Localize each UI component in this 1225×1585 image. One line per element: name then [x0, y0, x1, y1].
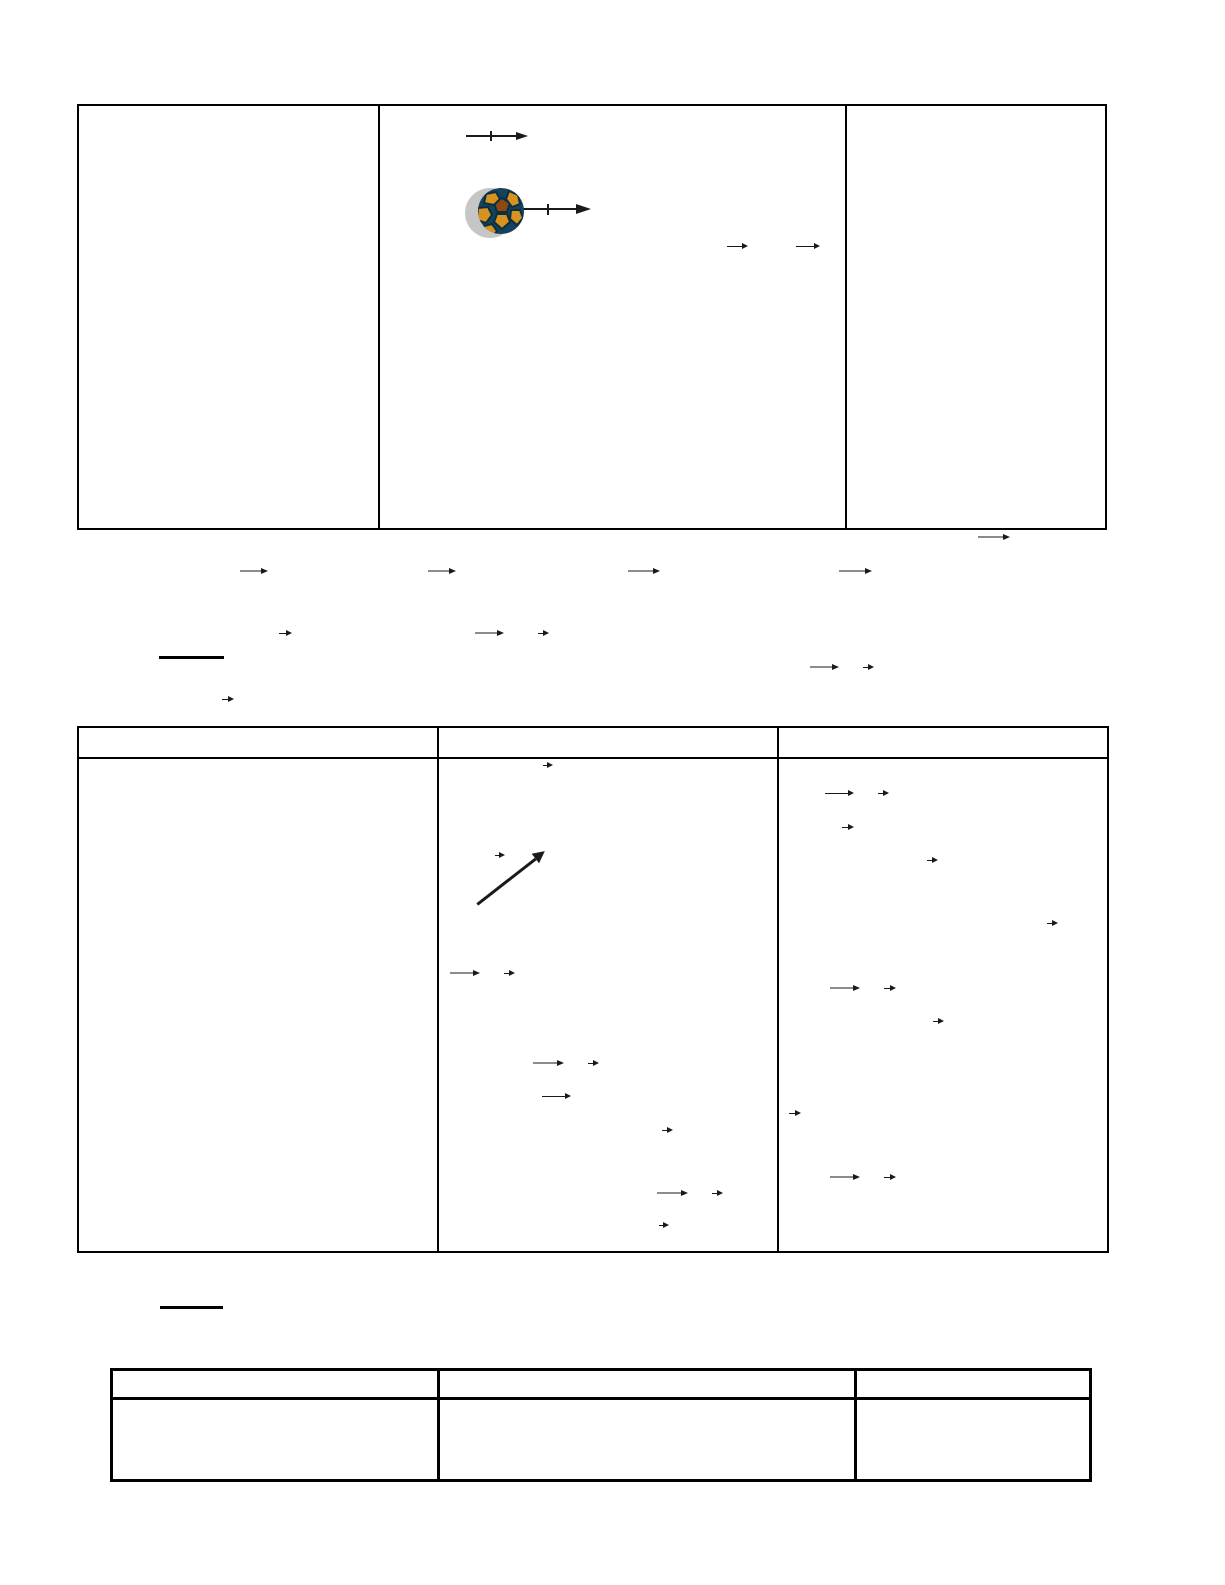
vector-arrow-shaft [863, 667, 869, 668]
vector-arrow-head [497, 630, 504, 636]
answer-blank-underline [159, 656, 224, 659]
vector-arrow-head [865, 568, 872, 574]
graphics-layer [0, 0, 1225, 1585]
vector-arrow-shaft [543, 765, 548, 766]
vector-arrow [842, 823, 854, 831]
vector-arrow [495, 851, 505, 859]
vector-arrow-head [938, 1018, 944, 1024]
vector-arrow-head [883, 790, 889, 796]
vector-arrow-head [681, 1190, 688, 1196]
vector-arrow [727, 242, 748, 250]
vector-arrow-shaft [279, 633, 287, 634]
vector-arrow-shaft [789, 1113, 796, 1114]
vector-arrow [657, 1189, 688, 1197]
middle-table-column-divider [437, 728, 439, 1251]
motion-arrow-tick [547, 204, 549, 215]
soccer-ball-svg [464, 186, 526, 238]
vector-arrow [796, 242, 820, 250]
middle-table [77, 726, 1109, 1253]
vector-arrow-head [557, 1060, 564, 1066]
vector-arrow-head [565, 1093, 571, 1099]
vector-arrow-shaft [933, 1021, 939, 1022]
bottom-table [110, 1368, 1092, 1482]
vector-arrow-head [795, 1110, 801, 1116]
vector-arrow-head [890, 985, 896, 991]
vector-arrow-head [449, 568, 456, 574]
vector-arrow [712, 1189, 723, 1197]
vector-arrow-head [814, 243, 820, 249]
vector-arrow-shaft [450, 972, 474, 974]
vector-arrow-head [1003, 534, 1010, 540]
vector-arrow-shaft [222, 699, 229, 700]
vector-arrow-head [499, 852, 505, 858]
bottom-table-header-divider [113, 1397, 1089, 1400]
vector-arrow-head [1052, 920, 1058, 926]
vector-arrow-head [473, 970, 480, 976]
vector-arrow-head [667, 1127, 673, 1133]
vector-arrow-head [547, 762, 553, 768]
vector-arrow-shaft [796, 246, 815, 247]
vector-arrow-head [932, 857, 938, 863]
vector-arrow [863, 663, 874, 671]
vector-arrow [475, 629, 504, 637]
vector-arrow [628, 567, 660, 575]
vector-arrow [659, 1221, 669, 1229]
vector-arrow-head [848, 824, 854, 830]
vector-arrow [789, 1109, 801, 1117]
vector-arrow-shaft [1047, 923, 1053, 924]
vector-arrow-shaft [504, 973, 510, 974]
vector-arrow [884, 1173, 896, 1181]
vector-arrow [662, 1126, 673, 1134]
vector-arrow [279, 629, 292, 637]
middle-table-column-divider [777, 728, 779, 1251]
vector-arrow-shaft [588, 1063, 594, 1064]
vector-arrow [933, 1017, 944, 1025]
vector-arrow-shaft [657, 1192, 682, 1194]
vector-arrow-shaft [842, 827, 849, 828]
vector-arrow-shaft [428, 570, 450, 572]
vector-arrow-shaft [830, 987, 854, 989]
vector-arrow-shaft [662, 1130, 668, 1131]
vector-arrow-head [832, 664, 839, 670]
vector-arrow-head [593, 1060, 599, 1066]
bottom-table-column-divider [437, 1371, 440, 1479]
vector-arrow-head [653, 568, 660, 574]
vector-arrow-shaft [712, 1193, 718, 1194]
vector-arrow-head [890, 1174, 896, 1180]
vector-arrow-head [742, 243, 748, 249]
vector-arrow-shaft [927, 860, 933, 861]
diagonal-arrow-head [532, 846, 549, 863]
vector-arrow-head [543, 630, 549, 636]
vector-arrow-shaft [884, 1177, 891, 1178]
vector-arrow [240, 567, 268, 575]
middle-table-header-divider [79, 757, 1107, 759]
vector-arrow [538, 629, 549, 637]
vector-arrow [222, 695, 234, 703]
vector-arrow [504, 969, 515, 977]
motion-arrow-head [576, 204, 591, 214]
bottom-table-column-divider [854, 1371, 857, 1479]
vector-arrow-shaft [659, 1225, 664, 1226]
vector-arrow-shaft [495, 855, 500, 856]
diagonal-arrow-shaft [476, 857, 536, 905]
vector-arrow [825, 789, 854, 797]
answer-blank-underline [160, 1306, 223, 1309]
diagonal-arrow [477, 851, 545, 904]
vector-arrow [533, 1059, 564, 1067]
vector-arrow-shaft [825, 793, 849, 794]
vector-arrow-shaft [878, 793, 884, 794]
top-table [77, 104, 1107, 530]
vector-arrow-head [717, 1190, 723, 1196]
vector-arrow-head [286, 630, 292, 636]
vector-arrow-head [261, 568, 268, 574]
vector-arrow [839, 567, 872, 575]
motion-arrow [466, 128, 528, 144]
vector-arrow-shaft [628, 570, 654, 572]
vector-arrow-shaft [810, 666, 833, 668]
motion-arrow-tick [490, 131, 492, 141]
motion-arrow-head [516, 132, 528, 140]
vector-arrow [588, 1059, 599, 1067]
motion-arrow [523, 201, 591, 217]
vector-arrow [543, 761, 553, 769]
vector-arrow [1047, 919, 1058, 927]
motion-arrow-shaft [466, 135, 516, 137]
motion-arrow-shaft [523, 208, 576, 210]
vector-arrow-shaft [884, 988, 891, 989]
vector-arrow [810, 663, 839, 671]
vector-arrow [428, 567, 456, 575]
vector-arrow-shaft [542, 1096, 566, 1097]
vector-arrow [450, 969, 480, 977]
vector-arrow [978, 533, 1010, 541]
vector-arrow [927, 856, 938, 864]
vector-arrow-head [853, 1174, 860, 1180]
top-table-column-divider [378, 106, 380, 528]
vector-arrow-head [509, 970, 515, 976]
vector-arrow-shaft [533, 1062, 558, 1064]
tables-layer [0, 0, 1225, 1585]
vector-arrow-head [848, 790, 854, 796]
vector-arrow [884, 984, 896, 992]
vector-arrow [830, 1173, 860, 1181]
vector-arrow-shaft [978, 536, 1004, 538]
vector-arrow [542, 1092, 571, 1100]
vector-arrow-shaft [475, 632, 498, 634]
vector-arrow-head [228, 696, 234, 702]
vector-arrow-head [853, 985, 860, 991]
vector-arrow-shaft [830, 1176, 854, 1178]
vector-arrow-head [868, 664, 874, 670]
vector-arrow-shaft [839, 570, 866, 572]
soccer-ball [464, 186, 526, 238]
worksheet-page [0, 0, 1225, 1585]
vector-arrow-head [663, 1222, 669, 1228]
vector-arrow-shaft [727, 246, 743, 247]
vector-arrow [878, 789, 889, 797]
top-table-column-divider [845, 106, 847, 528]
vector-arrow [830, 984, 860, 992]
vector-arrow-shaft [538, 633, 544, 634]
vector-arrow-shaft [240, 570, 262, 572]
